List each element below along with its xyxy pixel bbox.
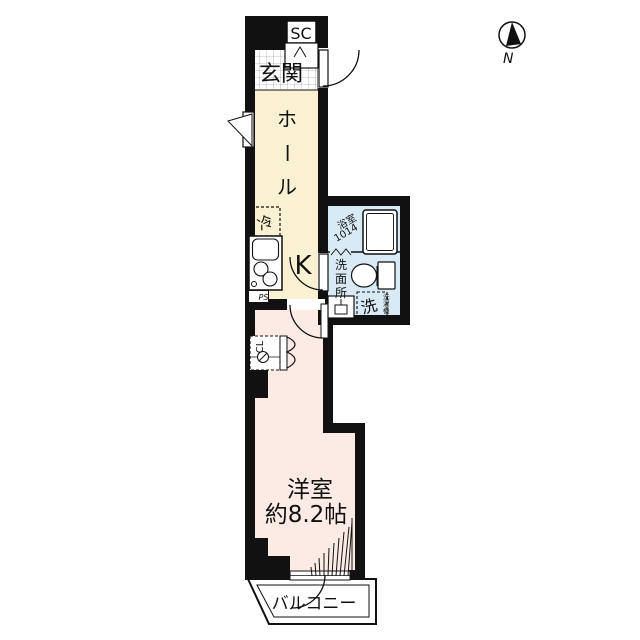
room-door-opening <box>287 299 325 310</box>
wall-corridor-right <box>318 88 328 253</box>
toilet-bowl-icon <box>352 264 377 287</box>
closet-label: CL <box>255 340 266 353</box>
wall-room-right-upper <box>323 325 333 433</box>
washroom-label-char2: 面 <box>335 272 347 286</box>
hall-window-swing-icon <box>228 114 252 146</box>
stove-knob-icon <box>252 282 257 287</box>
kitchen-sink-icon <box>253 239 279 260</box>
washroom-label-char1: 洗 <box>335 258 347 272</box>
bathtub-icon <box>363 210 397 254</box>
wall-bottom-step-2 <box>245 556 290 580</box>
pipe-space-label: PS <box>259 293 269 302</box>
entrance-label: 玄関 <box>259 62 303 87</box>
wall-below-closet <box>245 368 268 398</box>
room-name-label: 洋室 <box>287 477 333 503</box>
toilet-tank-icon <box>378 262 395 289</box>
north-arrow-icon: N <box>499 22 525 67</box>
washbasin-bowl-icon <box>335 305 347 314</box>
stove-burner-icon <box>263 272 277 286</box>
laundry-machine-char3: 機 <box>383 306 390 315</box>
hall-label-char2: ー <box>275 143 299 163</box>
wall-room-right-lower <box>355 423 365 572</box>
washroom-label-char3: 所 <box>335 286 347 300</box>
north-label: N <box>503 51 514 67</box>
room-size-label: 約8.2帖 <box>265 502 348 528</box>
washroom-door-leaf <box>319 254 328 291</box>
room-door-leaf <box>321 304 328 338</box>
shoe-closet-label: SC <box>290 24 311 43</box>
closet-door-frame <box>280 336 287 370</box>
hall-label-char1: ホ <box>277 107 297 131</box>
balcony-label: バルコニー <box>272 594 357 614</box>
hall-label-char3: ル <box>277 175 297 199</box>
wall-bottom-step-1 <box>245 538 268 556</box>
entrance-door-leaf <box>319 50 328 87</box>
kitchen-label: K <box>294 251 312 281</box>
wall-bath-right <box>400 196 410 325</box>
wall-bath-top <box>328 196 410 206</box>
floor-plan: N SC 玄関 ホ ー ル 冷 K PS 浴室 1014 洗 面 所 洗 洗 濯… <box>0 0 640 640</box>
